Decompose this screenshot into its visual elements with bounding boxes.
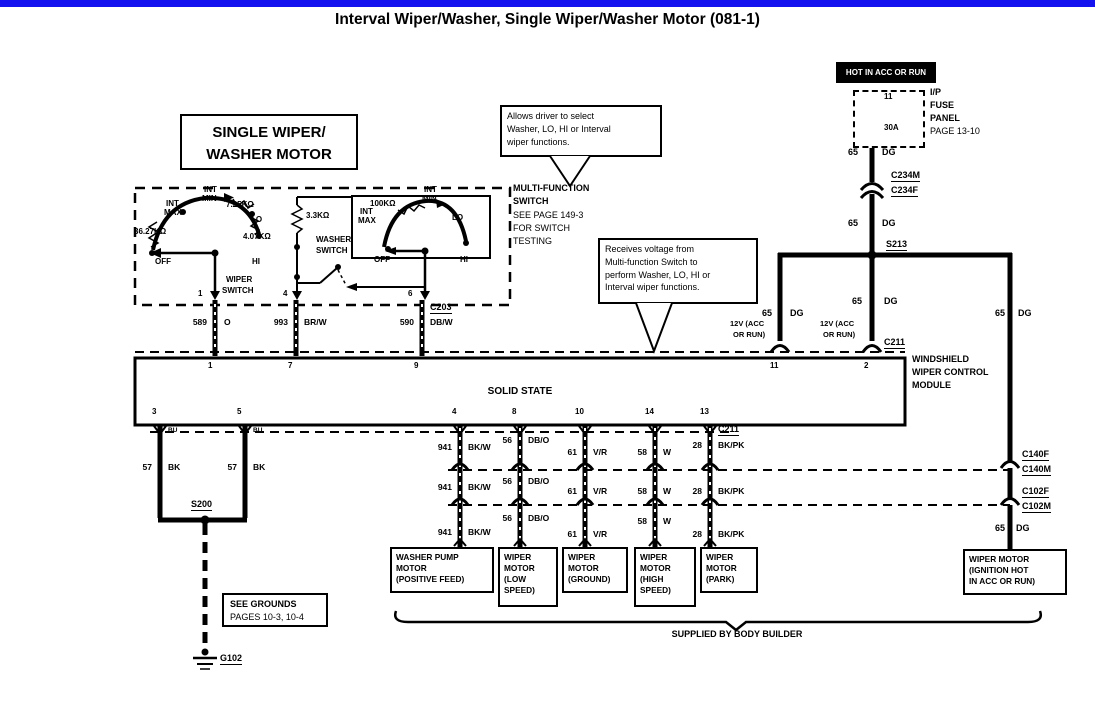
wire-589-number: 589 (193, 318, 207, 327)
wiper-motor-park-box: WIPER MOTOR (PARK) (700, 547, 758, 593)
wire-61-color-r3: V/R (593, 530, 607, 539)
callout-receive-line2: Multi-function Switch to (605, 256, 751, 269)
fuse-panel-name-line1: I/P (930, 88, 941, 98)
switch-pin-1-label: 1 (198, 290, 202, 299)
low-speed-line1: WIPER (504, 552, 552, 563)
wire-61-color-r2: V/R (593, 487, 607, 496)
callout-receive-line1: Receives voltage from (605, 243, 751, 256)
main-motor-line3: IN ACC OR RUN) (969, 576, 1061, 587)
resistor-3-3k-label: 3.3KΩ (306, 212, 329, 221)
mfs-name-line2: SWITCH (513, 197, 549, 207)
left-lo-label: LO (251, 216, 262, 225)
resistor-7-25k-label: 7.25KΩ (226, 201, 254, 210)
wire-58-color-r2: W (663, 487, 671, 496)
wire-56-number-r1: 56 (503, 436, 512, 445)
module-pin-10: 10 (575, 408, 584, 417)
callout-receive-line3: perform Washer, LO, HI or (605, 269, 751, 282)
module-pin-14: 14 (645, 408, 654, 417)
motor-title-line2: WASHER MOTOR (182, 144, 356, 166)
callout-receive-pointer (634, 302, 674, 354)
left-hi-label: HI (252, 258, 260, 267)
wire-56-number-r3: 56 (503, 514, 512, 523)
supplied-by-body-builder-label: SUPPLIED BY BODY BUILDER (672, 630, 803, 640)
washer-pump-line2: MOTOR (396, 563, 488, 574)
connector-c140m-label: C140M (1022, 465, 1051, 476)
park-line1: WIPER (706, 552, 752, 563)
connector-c211-label-top: C211 (884, 338, 905, 349)
wire-590-number: 590 (400, 318, 414, 327)
low-speed-line4: SPEED) (504, 585, 552, 596)
washer-switch-label-line1: WASHER (316, 236, 351, 245)
wire-dg-label-2: DG (882, 219, 896, 229)
callout-receives-voltage: Receives voltage from Multi-function Swi… (598, 238, 758, 304)
voltage-note-mid-line1: 12V (ACC (820, 320, 854, 328)
voltage-note-mid-line2: OR RUN) (823, 331, 855, 339)
motor-title-line1: SINGLE WIPER/ (182, 122, 356, 144)
left-off-label: OFF (155, 258, 171, 267)
wiper-switch-label-line2: SWITCH (222, 287, 254, 296)
right-int-max-label-max: MAX (358, 217, 376, 226)
wire-65-label-5: 65 (995, 309, 1005, 319)
wire-941-color-r2: BK/W (468, 483, 491, 492)
module-pin-3: 3 (152, 408, 156, 417)
ground-g102-label: G102 (220, 654, 242, 665)
left-int-min-label-min: MIN (202, 195, 217, 204)
module-pin-11: 11 (770, 362, 778, 371)
module-name-line3: MODULE (912, 381, 951, 391)
wire-941-number-r1: 941 (438, 443, 452, 452)
right-lo-label: LO (452, 214, 463, 223)
wire-28-number-r1: 28 (693, 441, 702, 450)
wiper-motor-ground-box: WIPER MOTOR (GROUND) (562, 547, 628, 593)
wire-61-color-r1: V/R (593, 448, 607, 457)
voltage-note-left-line2: OR RUN) (733, 331, 765, 339)
wire-65-label-4: 65 (762, 309, 772, 319)
ground-motor-line3: (GROUND) (568, 574, 622, 585)
mfs-note-line2: FOR SWITCH (513, 224, 570, 234)
wire-993-color: BR/W (304, 318, 327, 327)
washer-pump-line1: WASHER PUMP (396, 552, 488, 563)
wire-28-color-r2: BK/PK (718, 487, 744, 496)
washer-pump-motor-box: WASHER PUMP MOTOR (POSITIVE FEED) (390, 547, 494, 593)
mfs-note-line3: TESTING (513, 237, 552, 247)
solid-state-label: SOLID STATE (488, 386, 553, 397)
wire-58-number-r3: 58 (638, 517, 647, 526)
wire-61-number-r1: 61 (568, 448, 577, 457)
ground-motor-line2: MOTOR (568, 563, 622, 574)
module-pin-9: 9 (414, 362, 418, 371)
wire-28-number-r2: 28 (693, 487, 702, 496)
callout-select-functions: Allows driver to select Washer, LO, HI o… (500, 105, 662, 157)
wire-941-number-r3: 941 (438, 528, 452, 537)
wiper-switch-label-line1: WIPER (226, 276, 252, 285)
fuse-panel-page-ref: PAGE 13-10 (930, 127, 980, 137)
wiper-motor-low-speed-box: WIPER MOTOR (LOW SPEED) (498, 547, 558, 607)
wire-dg-label-4: DG (790, 309, 804, 319)
park-line3: (PARK) (706, 574, 752, 585)
resistor-100k-label: 100KΩ (370, 200, 396, 209)
module-pin-8: 8 (512, 408, 516, 417)
callout-select-line2: Washer, LO, HI or Interval (507, 123, 655, 136)
module-pin-4: 4 (452, 408, 456, 417)
main-motor-line2: (IGNITION HOT (969, 565, 1061, 576)
wire-65-label-2: 65 (848, 219, 858, 229)
connector-c211-label-bottom: C211 (718, 425, 739, 436)
wire-dg-label-6: DG (1016, 524, 1030, 534)
washer-pump-line3: (POSITIVE FEED) (396, 574, 488, 585)
wire-61-number-r3: 61 (568, 530, 577, 539)
connector-c140f-label: C140F (1022, 450, 1049, 461)
module-pin-5: 5 (237, 408, 241, 417)
grounds-note-line2: PAGES 10-3, 10-4 (230, 611, 320, 624)
wire-61-number-r2: 61 (568, 487, 577, 496)
wire-57-color-1: BK (168, 463, 180, 472)
stub-bu-label-1: BU (168, 427, 177, 434)
wire-dg-label-1: DG (882, 148, 896, 158)
resistor-36-27k-label: 36.27KΩ (134, 228, 166, 237)
fuse-rating-label: 30A (884, 124, 899, 133)
fuse-panel-name-line3: PANEL (930, 114, 960, 124)
fuse-panel-name-line2: FUSE (930, 101, 954, 111)
wire-65-label-1: 65 (848, 148, 858, 158)
high-speed-line3: (HIGH (640, 574, 690, 585)
high-speed-line2: MOTOR (640, 563, 690, 574)
wire-56-number-r2: 56 (503, 477, 512, 486)
wire-57-number-1: 57 (143, 463, 152, 472)
wire-dg-label-3: DG (884, 297, 898, 307)
wire-58-color-r3: W (663, 517, 671, 526)
wire-28-color-r3: BK/PK (718, 530, 744, 539)
mfs-note-line1: SEE PAGE 149-3 (513, 211, 583, 221)
washer-switch-label-line2: SWITCH (316, 247, 348, 256)
single-wiper-washer-motor-box: SINGLE WIPER/ WASHER MOTOR (180, 114, 358, 170)
main-motor-line1: WIPER MOTOR (969, 554, 1061, 565)
wire-56-color-r3: DB/O (528, 514, 549, 523)
module-name-line2: WIPER CONTROL (912, 368, 989, 378)
wire-590-color: DB/W (430, 318, 453, 327)
high-speed-line4: SPEED) (640, 585, 690, 596)
wire-941-color-r1: BK/W (468, 443, 491, 452)
wire-dg-label-5: DG (1018, 309, 1032, 319)
hot-in-acc-or-run-banner: HOT IN ACC OR RUN (836, 62, 936, 83)
right-int-min-label-min: MIN (422, 195, 437, 204)
wire-56-color-r1: DB/O (528, 436, 549, 445)
wire-57-color-2: BK (253, 463, 265, 472)
right-off-label: OFF (374, 256, 390, 265)
module-pin-7: 7 (288, 362, 292, 371)
wire-65-label-6: 65 (995, 524, 1005, 534)
splice-s213-label: S213 (886, 240, 907, 251)
low-speed-line3: (LOW (504, 574, 552, 585)
stub-bu-label-2: BU (253, 427, 262, 434)
connector-c234m-label: C234M (891, 171, 920, 182)
wire-28-number-r3: 28 (693, 530, 702, 539)
high-speed-line1: WIPER (640, 552, 690, 563)
module-pin-1: 1 (208, 362, 212, 371)
wire-58-number-r2: 58 (638, 487, 647, 496)
park-line2: MOTOR (706, 563, 752, 574)
resistor-4-07k-label: 4.07KΩ (243, 233, 271, 242)
wire-56-color-r2: DB/O (528, 477, 549, 486)
connector-c234f-label: C234F (891, 186, 918, 197)
switch-pin-4-label: 4 (283, 290, 287, 299)
module-name-line1: WINDSHIELD (912, 355, 969, 365)
module-pin-13: 13 (700, 408, 709, 417)
voltage-note-left-line1: 12V (ACC (730, 320, 764, 328)
splice-s200-label: S200 (191, 500, 212, 511)
callout-select-line3: wiper functions. (507, 136, 655, 149)
wire-589-color: O (224, 318, 231, 327)
callout-select-pointer (548, 155, 592, 191)
connector-c203-label: C203 (430, 303, 452, 314)
ground-motor-line1: WIPER (568, 552, 622, 563)
switch-pin-6-label: 6 (408, 290, 412, 299)
low-speed-line2: MOTOR (504, 563, 552, 574)
wire-58-number-r1: 58 (638, 448, 647, 457)
wire-57-number-2: 57 (228, 463, 237, 472)
see-grounds-note-box: SEE GROUNDS PAGES 10-3, 10-4 (222, 593, 328, 627)
wire-941-color-r3: BK/W (468, 528, 491, 537)
wire-941-number-r2: 941 (438, 483, 452, 492)
wiring-diagram-page: Interval Wiper/Washer, Single Wiper/Wash… (0, 0, 1095, 719)
callout-receive-line4: Interval wiper functions. (605, 281, 751, 294)
wiper-motor-high-speed-box: WIPER MOTOR (HIGH SPEED) (634, 547, 696, 607)
callout-select-line1: Allows driver to select (507, 110, 655, 123)
left-int-max-label-max: MAX (164, 209, 182, 218)
wire-993-number: 993 (274, 318, 288, 327)
grounds-note-line1: SEE GROUNDS (230, 598, 320, 611)
fuse-pin-label: 11 (884, 93, 892, 102)
module-pin-2: 2 (864, 362, 868, 371)
connector-c102f-label: C102F (1022, 487, 1049, 498)
wire-65-label-3: 65 (852, 297, 862, 307)
wiper-motor-main-box: WIPER MOTOR (IGNITION HOT IN ACC OR RUN) (963, 549, 1067, 595)
wire-28-color-r1: BK/PK (718, 441, 744, 450)
connector-c102m-label: C102M (1022, 502, 1051, 513)
wire-58-color-r1: W (663, 448, 671, 457)
right-hi-label: HI (460, 256, 468, 265)
